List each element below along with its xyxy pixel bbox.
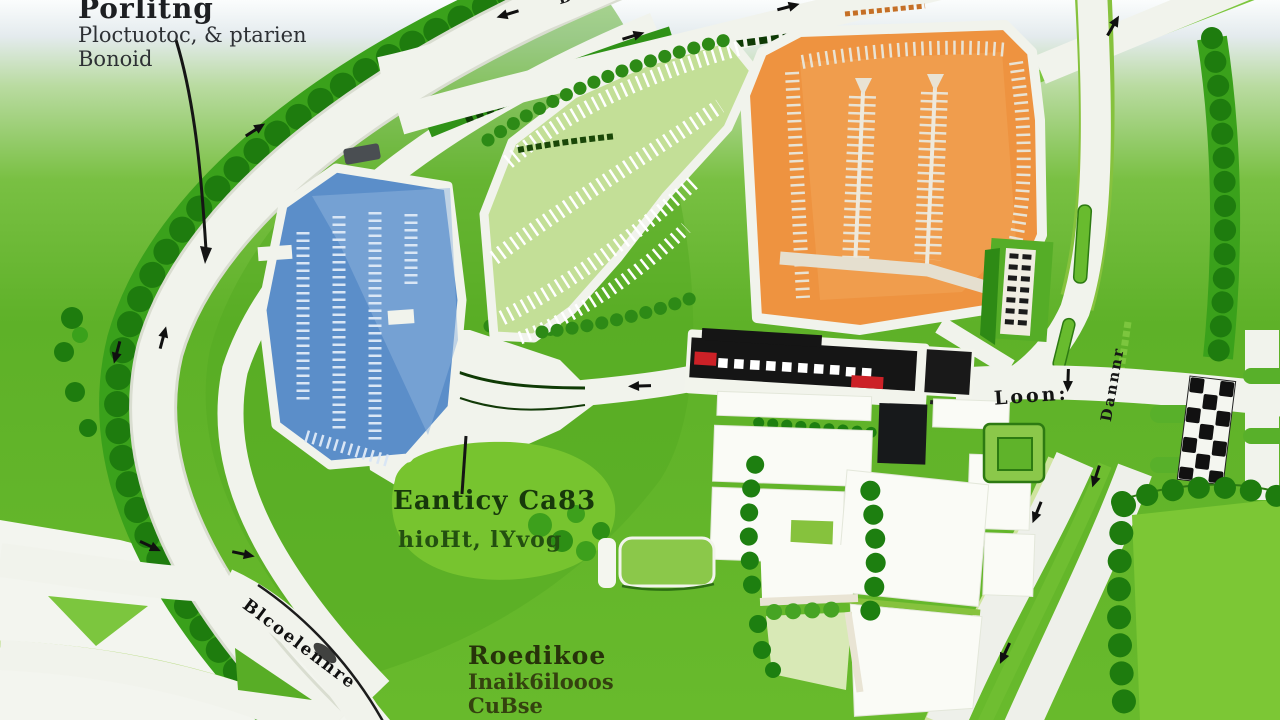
grandstand-box xyxy=(923,348,974,397)
entrance-label-subtitle: hioHt, lYvog xyxy=(398,528,562,553)
entrance-label-title: Eanticy Ca83 xyxy=(393,487,596,516)
parking-label-title: Porlitng xyxy=(78,0,307,24)
grandstand-red-block xyxy=(851,375,884,389)
bottom-right-field xyxy=(1119,485,1280,720)
grandstand-red-block xyxy=(694,352,717,366)
tree-row xyxy=(746,465,759,603)
site-map: Porlitng Ploctuotoc, & ptarien Bonoid Ea… xyxy=(0,0,1280,720)
racecourse-label-line3: CuBse xyxy=(468,694,614,718)
racecourse-label-title: Roedikoe xyxy=(468,642,614,670)
parking-label-line3: Bonoid xyxy=(78,48,307,72)
dark-building xyxy=(877,403,927,465)
racecourse-label-line2: Inaik6ilooos xyxy=(468,670,614,694)
parking-label: Porlitng Ploctuotoc, & ptarien Bonoid xyxy=(78,0,307,71)
parking-label-line2: Ploctuotoc, & ptarien xyxy=(78,24,307,48)
junction-green-structure xyxy=(984,424,1044,482)
right-tree-line xyxy=(1212,38,1225,358)
map-canvas xyxy=(0,0,1280,720)
racecourse-label: Roedikoe Inaik6ilooos CuBse xyxy=(468,642,614,717)
